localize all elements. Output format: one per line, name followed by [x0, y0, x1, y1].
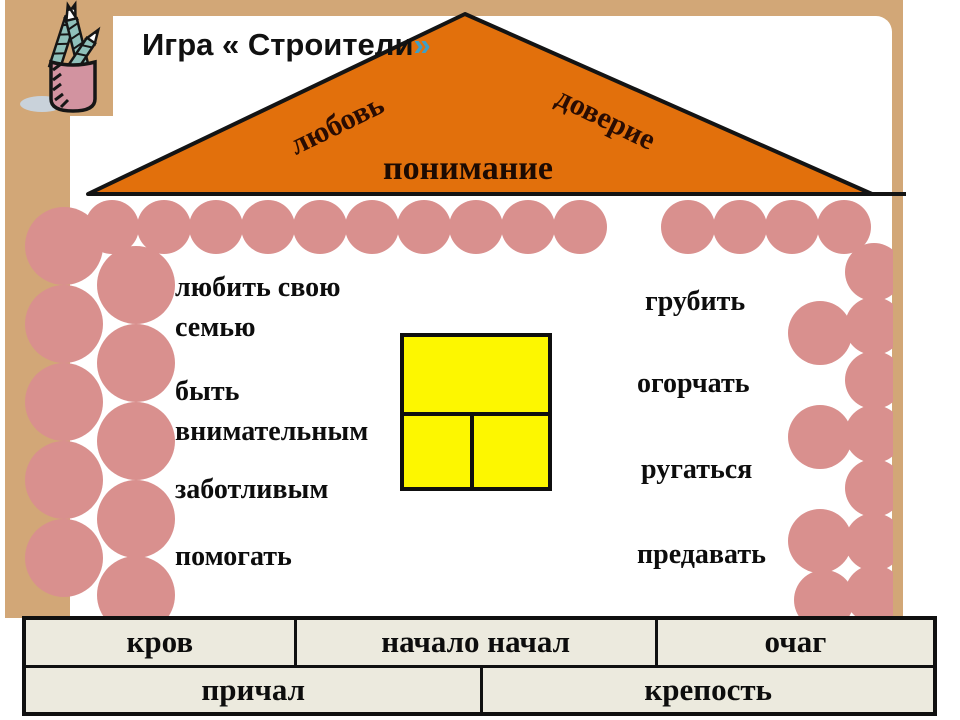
inside-word-1: любить свою семью	[175, 268, 425, 348]
window-icon	[400, 333, 552, 491]
brick-circle	[97, 402, 175, 480]
brick-circle	[25, 441, 103, 519]
pencil-cup-icon	[18, 0, 118, 122]
brick-circle	[97, 480, 175, 558]
brick-circle	[25, 363, 103, 441]
outside-word-2: огорчать	[637, 364, 887, 404]
brick-circle	[97, 324, 175, 402]
table-cell-ochag: очаг	[655, 620, 933, 665]
table-cell-krepost: крепость	[480, 668, 933, 713]
inside-word-4: помогать	[175, 537, 425, 577]
brick-circle	[25, 519, 103, 597]
table-cell-krov: кров	[26, 620, 294, 665]
inside-word-3: заботливым	[175, 470, 425, 510]
roof-label-understanding: понимание	[368, 150, 568, 188]
slide-title-text: Игра « Строители	[142, 27, 414, 62]
table-row: причал крепость	[26, 668, 933, 713]
outside-word-3: ругаться	[641, 450, 891, 490]
slide-title: Игра « Строители»	[142, 27, 431, 63]
brick-circle	[25, 285, 103, 363]
outside-word-4: предавать	[637, 535, 887, 575]
outside-word-1: грубить	[645, 282, 895, 322]
brick-circle	[25, 207, 103, 285]
table-cell-prichal: причал	[26, 668, 480, 713]
table-cell-nachalo-nachal: начало начал	[294, 620, 655, 665]
inside-word-2: быть внимательным	[175, 372, 425, 452]
brick-circle	[97, 246, 175, 324]
window-crossbar-horizontal	[404, 412, 548, 416]
synonyms-table: кров начало начал очаг причал крепость	[22, 616, 937, 716]
slide-title-closing-quote: »	[414, 27, 431, 62]
table-row: кров начало начал очаг	[26, 620, 933, 668]
slide: любовь доверие понимание Игра « Строител…	[0, 0, 960, 720]
window-crossbar-vertical	[470, 416, 474, 487]
